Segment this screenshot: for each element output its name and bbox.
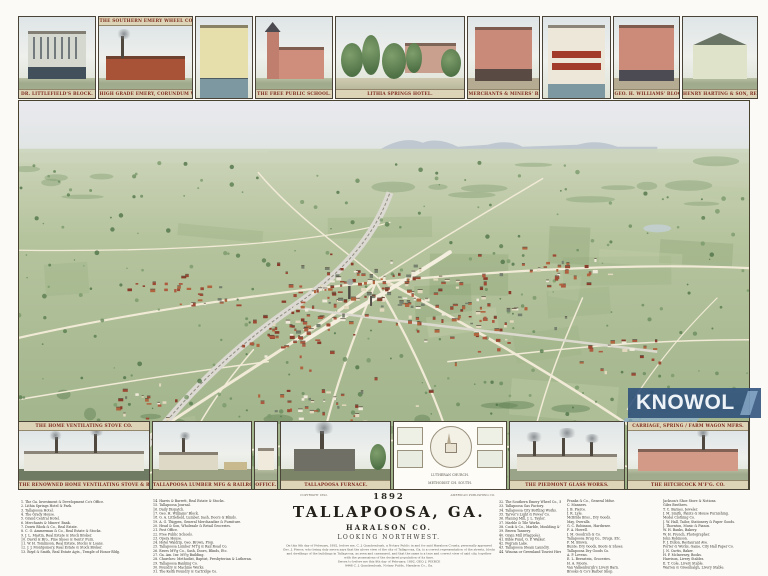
town-tower (370, 296, 372, 306)
sky (19, 101, 749, 153)
factory-sheds (24, 451, 144, 471)
vignette-piedmont-glass-works: THE PIEDMONT GLASS WORKS. (509, 421, 625, 490)
cornice (475, 27, 532, 30)
williams-block-illustration (614, 17, 679, 89)
tree (441, 49, 461, 77)
smoke-puff (347, 279, 353, 285)
directory-column-1: 1. The Ga. Investment & Development Co's… (21, 500, 150, 575)
vignette-caption: OFFICE. (255, 481, 277, 488)
bank-building (475, 27, 532, 81)
furnace-building (294, 449, 355, 471)
cornice (619, 25, 674, 28)
vignette-caption: THE FREE PUBLIC SCHOOL. (256, 90, 332, 97)
vignette-geo-williams-block: GEO. H. WILLIAMS' BLOCK. (613, 16, 680, 99)
tree (370, 444, 386, 470)
credit-left: COPYRIGHT 1892. (283, 494, 345, 502)
church-caption: METHODIST CH. SOUTH. (394, 481, 506, 485)
roofs (24, 451, 144, 454)
smokestack (590, 442, 593, 456)
smokestack (702, 435, 705, 450)
office-illustration (255, 422, 277, 480)
cornice (28, 31, 86, 34)
vignette-yellow-store-block (195, 16, 253, 99)
roof (638, 449, 739, 452)
vignette-caption: TALLAPOOSA FURNACE. (281, 481, 390, 488)
cornice (200, 25, 247, 28)
smoke (88, 431, 105, 436)
county-subtitle: HARALSON CO. (283, 523, 495, 532)
directory-entry: 31. The Keith Foundry & Cartridge Co. (153, 570, 281, 574)
littlefield-illustration (19, 17, 95, 89)
map-year: 1892 (373, 492, 405, 502)
directory-column-3: 32. The Southern Emery Wheel Co., Emery … (499, 500, 561, 575)
churches-illustration (394, 422, 506, 473)
roof (159, 452, 218, 455)
vignette-churches-composite: LUTHERAN CHURCH. METHODIST CH. SOUTH. (393, 421, 507, 490)
vignette-southern-emery-wheel: THE SOUTHERN EMERY WHEEL CO. HIGH GRADE … (98, 16, 193, 99)
church-body (445, 443, 457, 453)
vignette-caption: GEO. H. WILLIAMS' BLOCK. (614, 90, 679, 97)
school-building (276, 47, 325, 79)
lumber-works-illustration (153, 422, 251, 480)
glass-factory-sheds (517, 454, 617, 471)
knowol-watermark-text: KNOWOL (636, 391, 735, 415)
vignette-caption: DR. LITTLEFIELD'S BLOCK. (19, 90, 95, 97)
tower-roof (265, 22, 281, 32)
building-facade (619, 25, 674, 81)
directory-column-4: Franks & Co., General Mdse.C. Manners.J.… (567, 499, 660, 574)
roof (276, 47, 325, 50)
building-facade (28, 31, 86, 79)
emery-factory-illustration (99, 26, 192, 89)
ground (255, 469, 277, 480)
vignette-header: THE SOUTHERN EMERY WHEEL CO. (99, 17, 192, 24)
path-ground (336, 78, 464, 89)
storefront-glass (200, 78, 247, 98)
roof (106, 56, 184, 59)
storefront (619, 70, 674, 81)
directory-column-5: Jackson's Shoe Store & Notions.Giles Bro… (663, 499, 755, 574)
windows (33, 37, 82, 59)
vignette-free-public-school: THE FREE PUBLIC SCHOOL. (255, 16, 333, 99)
furnace-illustration (281, 422, 390, 480)
directory-column-2: 14. Harris & Barrett, Real Estate & Stoc… (153, 499, 281, 574)
hitchcock-factory (638, 449, 739, 471)
church-spire (447, 433, 451, 444)
school-illustration (256, 17, 332, 89)
directory-list: 1. The Ga. Investment & Development Co's… (21, 500, 150, 554)
top-vignette-strip: DR. LITTLEFIELD'S BLOCK. THE SOUTHERN EM… (18, 16, 750, 99)
bottom-vignette-strip: THE HOME VENTILATING STOVE CO. THE RENOW… (18, 421, 745, 490)
bank-illustration (468, 17, 539, 89)
map-sheet-page: { "sheet": { "year": "1892", "title": "T… (0, 0, 768, 576)
smoke (695, 431, 711, 437)
vignette-header: THE HOME VENTILATING STOVE CO. (19, 422, 149, 429)
title-top-row: COPYRIGHT 1892. 1892 AMERICAN PUBLISHING… (283, 492, 495, 502)
smokestack (182, 438, 185, 452)
building-facade (548, 25, 604, 98)
smoke (178, 432, 192, 440)
factory-building (106, 56, 184, 80)
lawn (683, 78, 757, 89)
vignette-hitchcock-mfg: CARRIAGE, SPRING / FARM WAGON MFRS. THE … (627, 421, 749, 490)
vignette-caption: LITHIA SPRINGS HOTEL. (336, 90, 464, 97)
corner-vignette (397, 427, 423, 445)
store-illustration (196, 17, 252, 98)
certification-fine-print: On this 9th day of February, 1892, befor… (283, 544, 495, 572)
fine-print-lines: On this 9th day of February, 1892, befor… (283, 544, 495, 568)
smokestack (533, 441, 536, 456)
horizon-fields (19, 149, 749, 163)
vignette-lumber-railroad-co: TALLAPOOSA LUMBER MFG & RAILROAD CO. (152, 421, 252, 490)
hitchcock-illustration (628, 431, 748, 480)
smoke (524, 432, 544, 442)
directory-list: 32. The Southern Emery Wheel Co., Emery … (499, 500, 561, 554)
town-smokestack (348, 286, 350, 299)
vignette-white-sign-block (542, 16, 611, 99)
directory-entry: 9448 C. J. Quackenbush, Notary Public, H… (283, 564, 495, 568)
cornice (548, 25, 604, 28)
roof (258, 448, 273, 451)
gable-roof (693, 33, 746, 45)
lumber-piles (224, 462, 248, 470)
smokestack (562, 438, 565, 456)
vignette-caption: THE PIEDMONT GLASS WORKS. (510, 481, 624, 488)
directory-list: 14. Harris & Barrett, Real Estate & Stoc… (153, 499, 281, 574)
vignette-caption: MERCHANTS & MINERS' BANK. (468, 90, 539, 97)
vignette-tallapoosa-furnace: TALLAPOOSA FURNACE. (280, 421, 391, 490)
vignette-caption: TALLAPOOSA LUMBER MFG & RAILROAD CO. (153, 481, 251, 488)
storefront-glass (548, 84, 604, 98)
smoke (48, 431, 63, 440)
central-circle-vignette (430, 426, 472, 468)
storefront (475, 69, 532, 81)
vignette-caption: HIGH GRADE EMERY, CORUNDUM WHEEL, MFRS. (99, 90, 192, 97)
corner-vignette (477, 427, 503, 445)
church-caption: LUTHERAN CHURCH. (394, 473, 506, 477)
directory-entry: Brooks & Co's Barber Shop. (567, 570, 660, 574)
directory-entry: 13. Boyd & Smith, Real Estate Agts., Tem… (21, 550, 150, 554)
office-building (258, 448, 273, 470)
sign-band (552, 51, 602, 58)
watermark-slash-decoration (740, 391, 758, 415)
storefront (28, 67, 86, 79)
vignette-henry-harting: HENRY HARTING & SON, REAL ESTATE. (682, 16, 758, 99)
corner-vignette (477, 450, 503, 468)
directory-list: Franks & Co., General Mdse.C. Manners.J.… (567, 499, 660, 574)
ground (19, 78, 95, 89)
lawn (256, 78, 332, 89)
yard (153, 469, 251, 480)
vignette-littlefield-block: DR. LITTLEFIELD'S BLOCK. (18, 16, 96, 99)
vignette-caption: HENRY HARTING & SON, REAL ESTATE. (683, 90, 757, 97)
school-tower (267, 31, 279, 79)
vignette-merchants-miners-bank: MERCHANTS & MINERS' BANK. (467, 16, 540, 99)
smoke (116, 29, 132, 39)
smokestack (121, 36, 124, 58)
stove-works-illustration (19, 431, 149, 480)
knowol-watermark: KNOWOL (628, 388, 761, 418)
mill-building (159, 452, 218, 470)
building-facade (200, 25, 247, 98)
directory-entry: Warren & Greenhalgh, Livery Stable. (663, 566, 755, 570)
sign-band (552, 63, 602, 70)
vignette-caption: THE HITCHCOCK M'F'G. CO. (628, 481, 748, 488)
white-block-illustration (543, 17, 610, 98)
house-facade (693, 45, 746, 79)
smokestack (94, 434, 97, 453)
vignette-header: CARRIAGE, SPRING / FARM WAGON MFRS. (628, 422, 748, 429)
directory-list: Jackson's Shoe Store & Notions.Giles Bro… (663, 499, 755, 570)
watermark-swoosh-decoration (623, 418, 699, 422)
tree (341, 43, 363, 77)
glass-works-illustration (510, 422, 624, 480)
harting-illustration (683, 17, 757, 89)
tree (382, 43, 406, 79)
title-block: COPYRIGHT 1892. 1892 AMERICAN PUBLISHING… (283, 492, 495, 572)
credit-right: AMERICAN PUBLISHING CO. (433, 494, 495, 502)
smoke (583, 434, 601, 443)
directory-entry: 44. Winona or Greenland Tourist Hive. (499, 550, 561, 554)
hotel-illustration (336, 17, 464, 89)
vignette-caption: THE RENOWNED HOME VENTILATING STOVE & RA… (19, 481, 149, 488)
orientation-subtitle: LOOKING NORTHWEST. (283, 534, 495, 541)
vignette-lithia-springs-hotel: LITHIA SPRINGS HOTEL. (335, 16, 465, 99)
map-title: TALLAPOOSA, GA. (283, 503, 495, 521)
smoke (556, 428, 578, 438)
pond (643, 224, 671, 232)
tree (362, 35, 380, 75)
heavy-smoke (312, 422, 336, 434)
corner-vignette (397, 450, 423, 468)
vignette-home-ventilating-stove: THE HOME VENTILATING STOVE CO. THE RENOW… (18, 421, 150, 490)
vignette-office: OFFICE. (254, 421, 278, 490)
